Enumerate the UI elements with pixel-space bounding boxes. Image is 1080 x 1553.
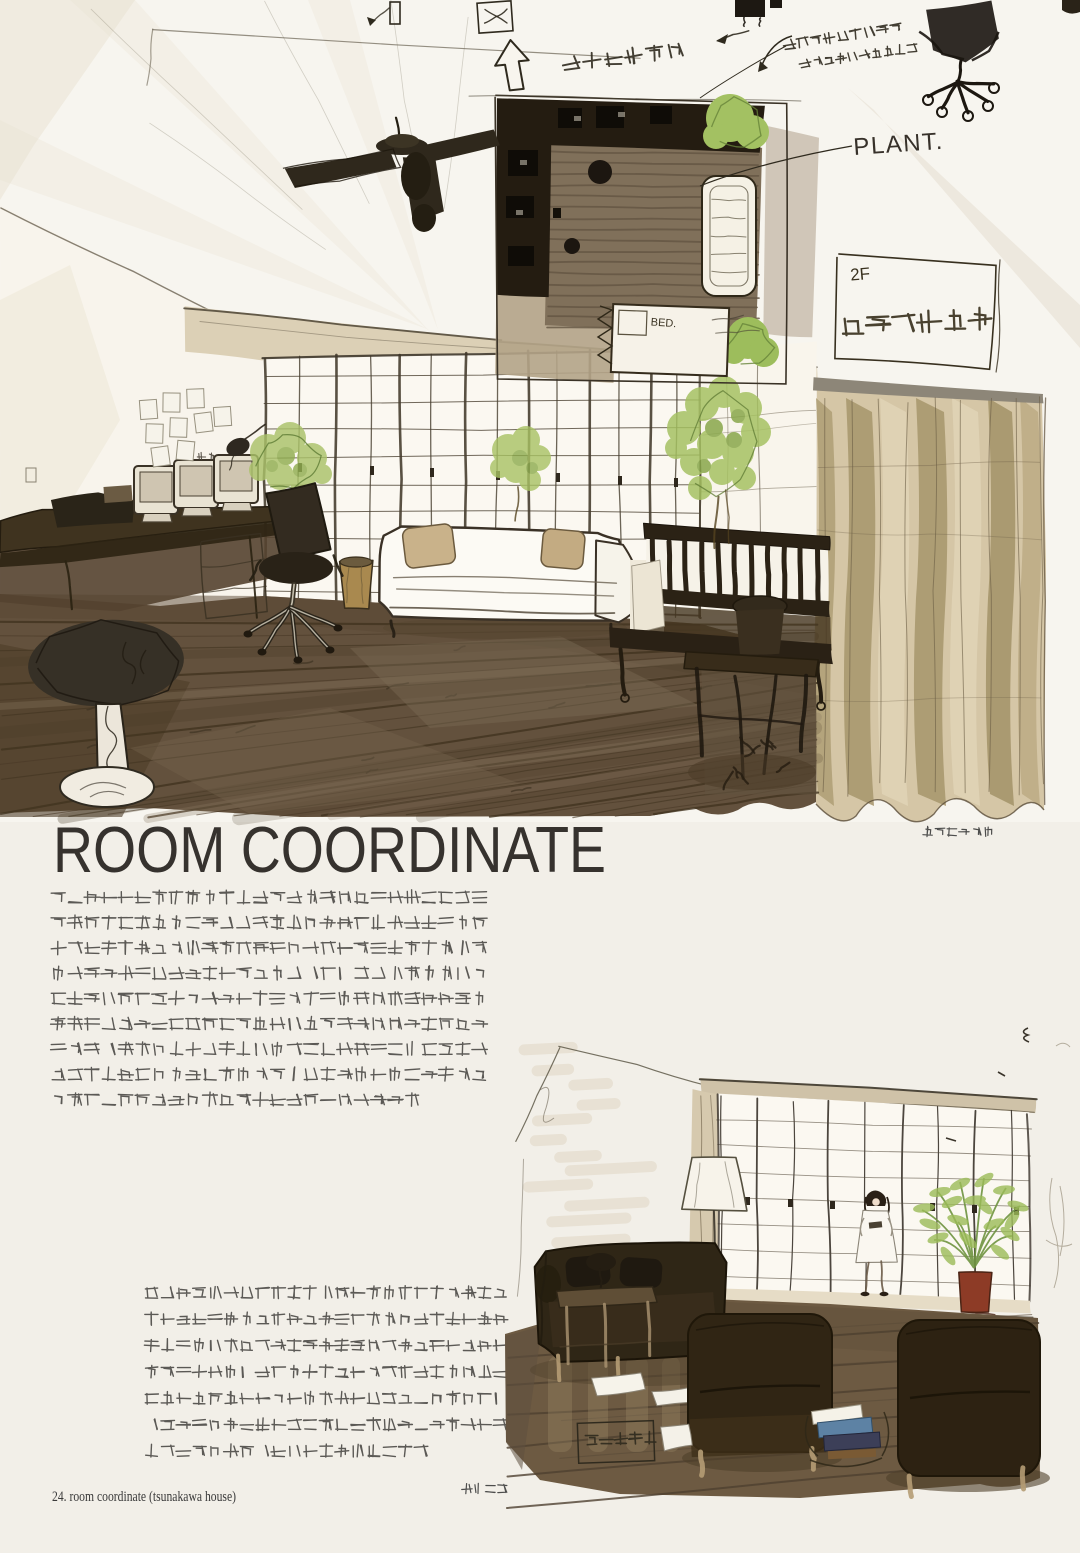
svg-text:24. room coordinate (tsunakawa: 24. room coordinate (tsunakawa house): [52, 1489, 236, 1505]
svg-text:BED.: BED.: [650, 316, 676, 330]
svg-text:ROOM COORDINATE: ROOM COORDINATE: [53, 813, 606, 886]
svg-text:2F: 2F: [849, 264, 870, 285]
